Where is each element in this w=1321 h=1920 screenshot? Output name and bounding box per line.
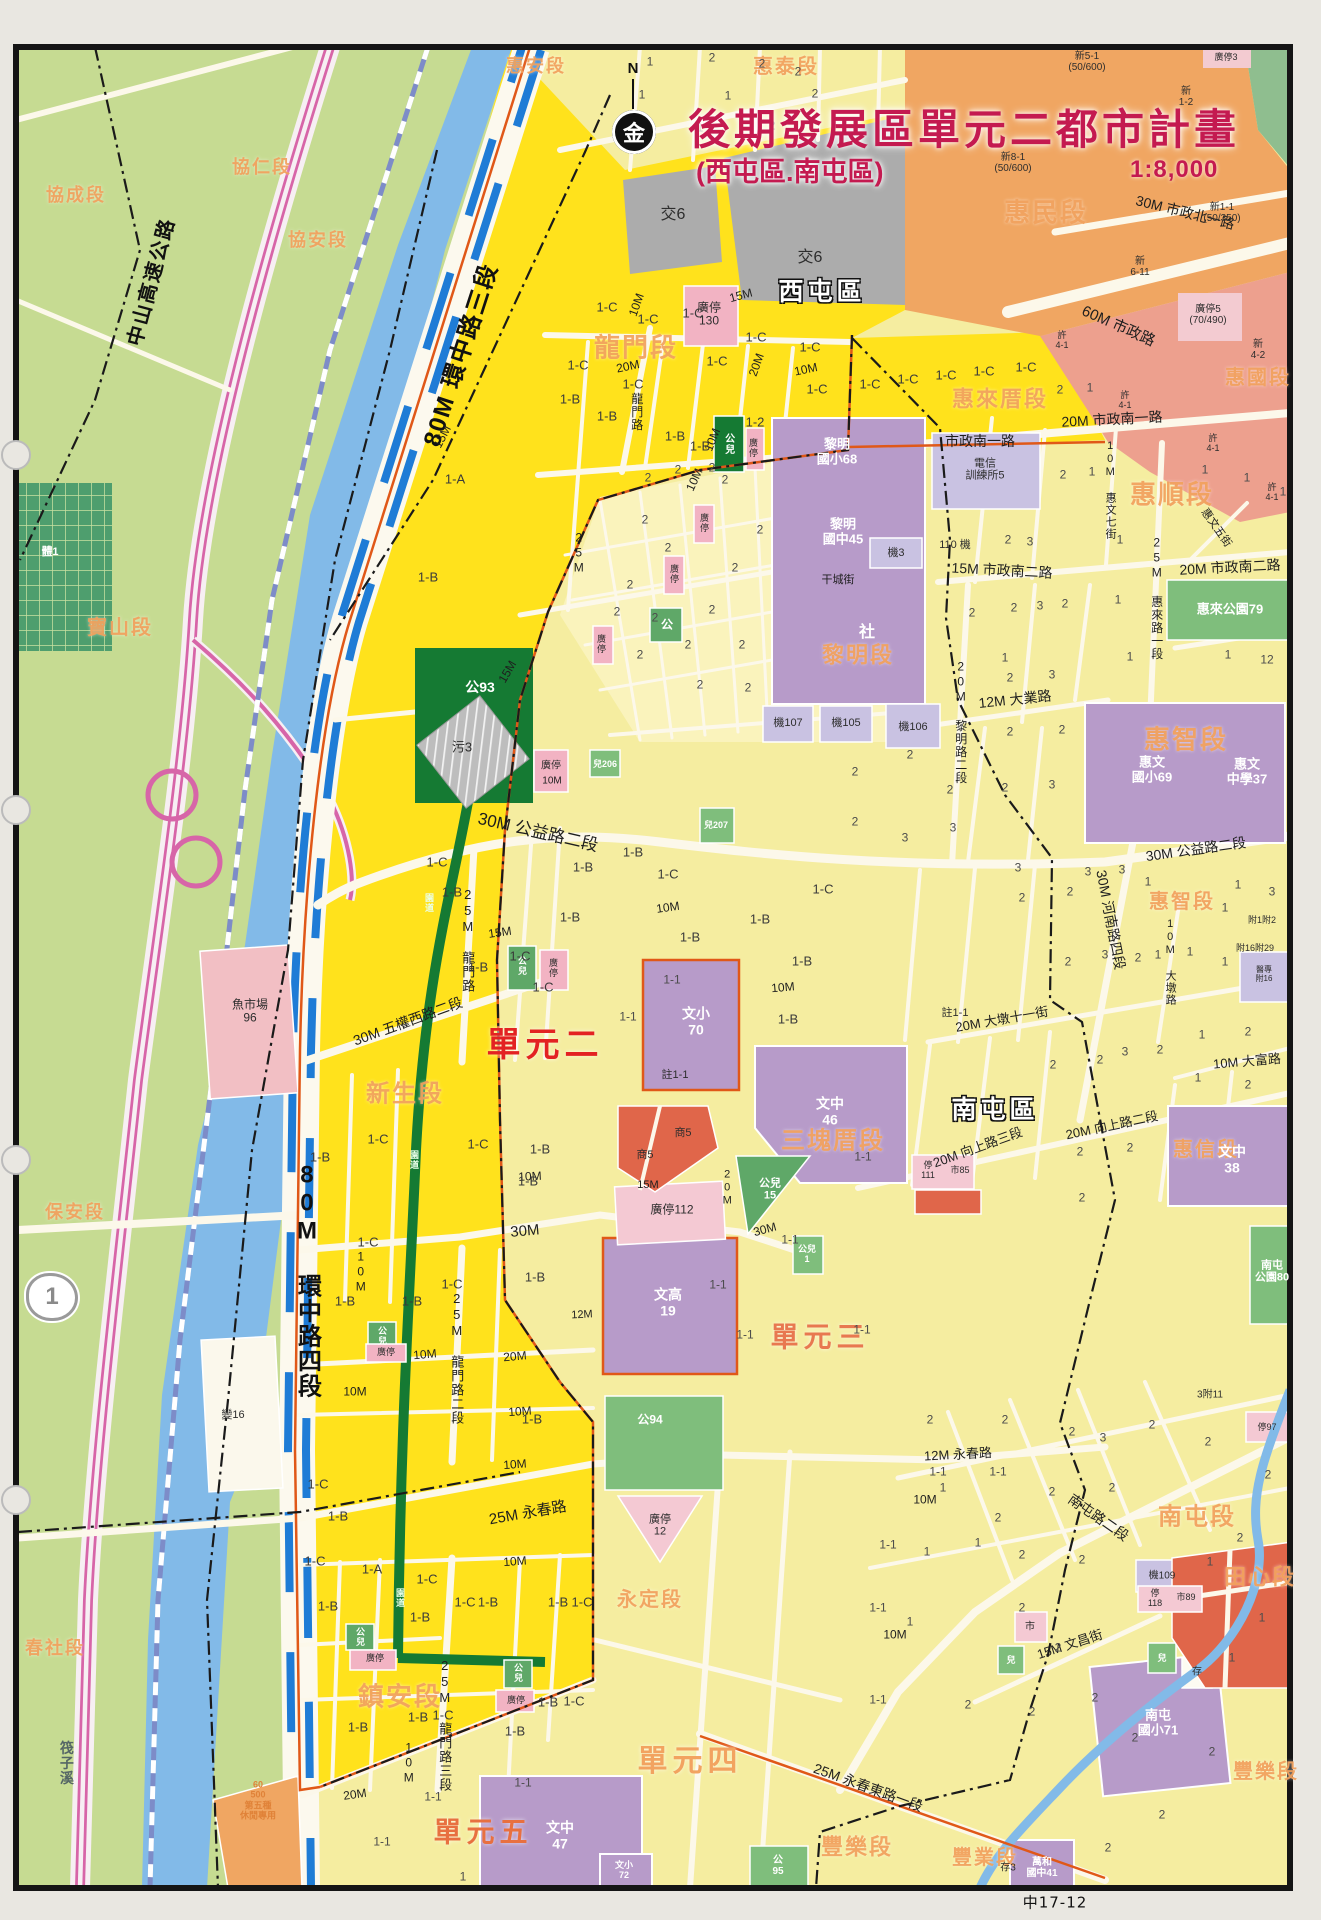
parking3-block bbox=[1203, 48, 1251, 68]
map-title: 後期發展區單元二都市計畫 bbox=[688, 96, 1240, 157]
page-number: 中17-12 bbox=[1023, 1892, 1088, 1913]
north-arrow-shaft bbox=[632, 79, 634, 109]
north-label: N bbox=[628, 60, 639, 77]
map-scale: 1:8,000 bbox=[1130, 156, 1218, 184]
agency-logo-icon: 金 bbox=[612, 110, 656, 154]
north-arrow-icon: N bbox=[622, 60, 644, 110]
stadium-park bbox=[17, 483, 112, 651]
map-subtitle: (西屯區.南屯區) bbox=[696, 150, 883, 189]
map-page: 協成段協仁段協安段惠安段惠泰段龍門段惠來厝段惠民段惠順段惠國段黎明段惠智段惠智段… bbox=[0, 0, 1321, 1920]
map-canvas bbox=[0, 0, 1321, 1920]
parking5-block bbox=[1178, 293, 1242, 341]
